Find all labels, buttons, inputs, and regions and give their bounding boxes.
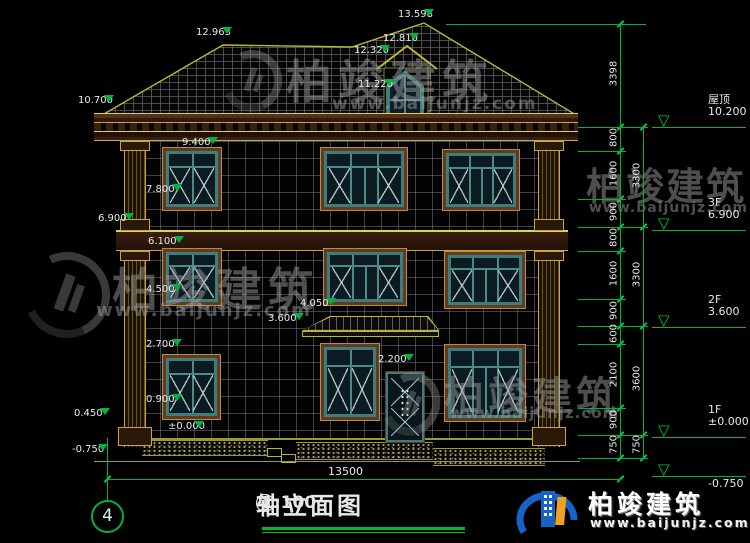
dim-value: 3398 bbox=[609, 54, 620, 94]
plinth-strip bbox=[433, 448, 545, 466]
window-mullion bbox=[469, 156, 471, 204]
floor-label: 屋顶 10.200 bbox=[672, 94, 744, 106]
casement-x bbox=[328, 368, 348, 411]
dim-value: 3300 bbox=[632, 156, 643, 196]
window-1f-center bbox=[321, 344, 379, 420]
brand-url: www.baijunjz.com bbox=[590, 515, 750, 530]
cornice-dentils bbox=[94, 123, 578, 132]
dimension-chain-line bbox=[643, 127, 644, 458]
casement-x bbox=[494, 169, 512, 203]
level-triangle-icon bbox=[222, 27, 232, 34]
floor-label: 2F 3.600 bbox=[672, 294, 744, 306]
level-value: 7.800 bbox=[146, 184, 175, 196]
dim-value: 2100 bbox=[609, 355, 620, 395]
grade-line bbox=[94, 461, 580, 462]
casement-x bbox=[452, 270, 471, 301]
level-triangle-icon bbox=[294, 313, 304, 320]
casement-x bbox=[332, 267, 352, 298]
floor-label: 1F ±0.000 bbox=[672, 404, 744, 416]
watermark-url: www.baijunjz.com bbox=[450, 404, 619, 422]
level-triangle-icon bbox=[384, 79, 394, 86]
window-mullion bbox=[472, 258, 474, 302]
watermark-url: www.baijunjz.com bbox=[332, 94, 538, 114]
grid-bubble-4: 4 bbox=[91, 500, 124, 533]
level-triangle-icon bbox=[172, 339, 182, 346]
dim-value: 1600 bbox=[609, 154, 620, 194]
pilaster-base bbox=[118, 427, 152, 446]
roof-cornice bbox=[94, 113, 578, 141]
level-triangle-icon bbox=[380, 45, 390, 52]
level-triangle-icon: ▽ bbox=[658, 313, 670, 328]
floor-label: 3F 6.900 bbox=[672, 197, 744, 209]
level-triangle-icon bbox=[100, 408, 110, 415]
floor-elev: ±0.000 bbox=[708, 416, 749, 428]
pilaster-base bbox=[534, 251, 564, 261]
dim-value: 3300 bbox=[632, 255, 643, 295]
elevation-drawing: 柏竣建筑 www.baijunjz.com 柏竣建筑 www.baijunjz.… bbox=[0, 0, 750, 543]
pilaster-cap bbox=[534, 219, 564, 231]
level-value: 0.450 bbox=[74, 408, 103, 420]
window-2f-right bbox=[445, 252, 525, 308]
window-mullion bbox=[481, 168, 483, 204]
level-value: 6.900 bbox=[98, 213, 127, 225]
window-3f-right bbox=[443, 150, 519, 210]
level-triangle-icon bbox=[194, 421, 204, 428]
level-value: 6.100 bbox=[148, 236, 177, 248]
dimension-chain-line bbox=[620, 24, 621, 458]
level-triangle-icon bbox=[98, 444, 108, 451]
level-triangle-icon bbox=[174, 236, 184, 243]
level-triangle-icon bbox=[124, 213, 134, 220]
floor-elev: -0.750 bbox=[708, 478, 743, 490]
level-triangle-icon bbox=[172, 394, 182, 401]
window-mullion bbox=[352, 255, 354, 299]
level-triangle-icon bbox=[208, 137, 218, 144]
casement-x bbox=[378, 168, 399, 203]
casement-x bbox=[193, 375, 213, 411]
level-triangle-icon bbox=[104, 95, 114, 102]
overall-dim-value: 13500 bbox=[328, 465, 363, 478]
dim-value: 800 bbox=[609, 218, 620, 258]
level-triangle-icon bbox=[409, 33, 419, 40]
floor-elev: 6.900 bbox=[708, 209, 740, 221]
window-3f-left bbox=[163, 148, 221, 210]
title-scale: 1:100 bbox=[262, 493, 316, 513]
level-value: 0.900 bbox=[146, 394, 175, 406]
brand-logo-icon bbox=[512, 480, 582, 538]
window-mullion bbox=[365, 266, 367, 299]
dim-value: 750 bbox=[609, 425, 620, 465]
entry-step bbox=[267, 448, 282, 457]
level-value: 4.500 bbox=[146, 284, 175, 296]
canopy-fascia bbox=[302, 331, 439, 337]
casement-x bbox=[194, 168, 214, 203]
plinth-strip bbox=[296, 442, 433, 460]
floor-elev: 10.200 bbox=[708, 106, 747, 118]
dim-value: 800 bbox=[609, 118, 620, 158]
casement-x bbox=[450, 169, 468, 203]
window-mullion bbox=[485, 269, 487, 302]
window-mullion bbox=[350, 154, 352, 204]
cornice-band bbox=[94, 137, 578, 141]
pilaster-base bbox=[532, 427, 566, 446]
level-triangle-icon bbox=[172, 284, 182, 291]
pilaster-cap bbox=[120, 141, 150, 151]
casement-x bbox=[379, 267, 399, 298]
level-triangle-icon bbox=[172, 184, 182, 191]
window-mullion bbox=[364, 167, 366, 204]
window-3f-center bbox=[321, 148, 407, 210]
level-triangle-icon: ▽ bbox=[658, 216, 670, 231]
level-value: 2.200 bbox=[378, 354, 407, 366]
title-underline bbox=[262, 532, 465, 533]
window-1f-left bbox=[163, 355, 220, 419]
window-2f-center bbox=[324, 249, 406, 305]
level-triangle-icon: ▽ bbox=[658, 113, 670, 128]
level-triangle-icon bbox=[424, 9, 434, 16]
level-value: 9.400 bbox=[182, 137, 211, 149]
level-value: 3.600 bbox=[268, 313, 297, 325]
dim-value: 1600 bbox=[609, 254, 620, 294]
level-value: 4.050 bbox=[300, 298, 329, 310]
pilaster-cap bbox=[534, 141, 564, 151]
watermark-logo-icon bbox=[12, 240, 122, 350]
casement-x bbox=[329, 168, 350, 203]
floor-elev: 3.600 bbox=[708, 306, 740, 318]
level-triangle-icon: ▽ bbox=[658, 423, 670, 438]
dim-value: 3600 bbox=[632, 359, 643, 399]
level-triangle-icon: ▽ bbox=[658, 462, 670, 477]
dim-value: 750 bbox=[632, 425, 643, 465]
extension-line bbox=[446, 24, 646, 25]
level-triangle-icon bbox=[404, 354, 414, 361]
level-triangle-icon bbox=[326, 298, 336, 305]
title-underline bbox=[262, 527, 465, 530]
dim-value: 600 bbox=[609, 314, 620, 354]
plinth-strip bbox=[142, 440, 268, 456]
casement-x bbox=[352, 368, 372, 411]
casement-x bbox=[498, 270, 517, 301]
level-value: 2.700 bbox=[146, 339, 175, 351]
drawing-title: 4 — 1 轴立面图 1:100 bbox=[256, 495, 270, 511]
